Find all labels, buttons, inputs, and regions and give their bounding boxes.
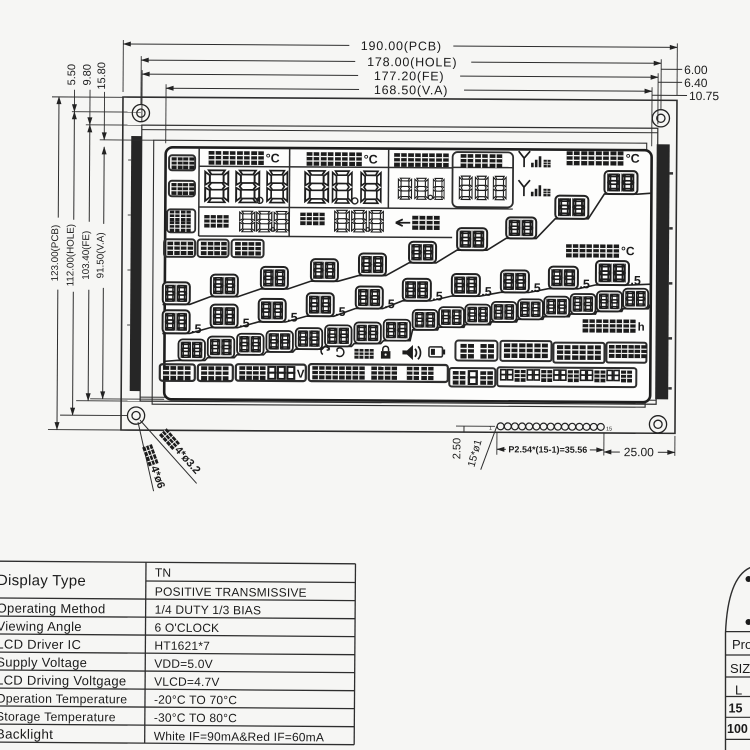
- svg-text:15: 15: [606, 426, 612, 432]
- svg-text:°C: °C: [621, 244, 635, 258]
- svg-text:91.50(V.A): 91.50(V.A): [95, 232, 106, 278]
- svg-text:9.80: 9.80: [82, 64, 94, 85]
- svg-text:15: 15: [729, 702, 743, 716]
- svg-text:VDD=5.0V: VDD=5.0V: [154, 657, 213, 671]
- svg-text:Operation Temperature: Operation Temperature: [0, 691, 127, 706]
- svg-text:10.75: 10.75: [689, 89, 719, 103]
- svg-text:.5: .5: [579, 277, 590, 291]
- svg-text:Storage Temperature: Storage Temperature: [0, 709, 116, 724]
- svg-text:Display Type: Display Type: [0, 572, 86, 590]
- svg-text:2.50: 2.50: [451, 438, 463, 459]
- svg-text:TN: TN: [155, 566, 172, 580]
- svg-text:POSITIVE TRANSMISSIVE: POSITIVE TRANSMISSIVE: [155, 585, 307, 600]
- svg-text:.5: .5: [384, 297, 395, 311]
- svg-text:LCD Driving Voltgage: LCD Driving Voltgage: [0, 672, 126, 688]
- svg-text:25.00: 25.00: [624, 445, 654, 459]
- svg-text:112.00(HOLE): 112.00(HOLE): [65, 224, 76, 287]
- svg-text:190.00(PCB): 190.00(PCB): [361, 39, 442, 53]
- svg-text:h: h: [638, 322, 645, 334]
- svg-text:168.50(V.A): 168.50(V.A): [374, 83, 448, 97]
- svg-text:-20°C TO 70°C: -20°C TO 70°C: [154, 693, 237, 708]
- svg-text:6 O'CLOCK: 6 O'CLOCK: [154, 621, 219, 635]
- svg-text:.5: .5: [530, 281, 541, 295]
- svg-text:100: 100: [727, 722, 748, 736]
- svg-text:123.00(PCB): 123.00(PCB): [50, 225, 61, 282]
- svg-text:Backlight: Backlight: [0, 726, 53, 741]
- svg-text:HT1621*7: HT1621*7: [154, 639, 210, 653]
- svg-text:.5: .5: [432, 289, 443, 303]
- svg-text:°C: °C: [626, 152, 640, 166]
- svg-text:White IF=90mA&Red IF=60mA: White IF=90mA&Red IF=60mA: [154, 729, 325, 744]
- svg-text:Pro: Pro: [732, 637, 750, 652]
- svg-text:.5: .5: [239, 316, 250, 330]
- svg-text:15.80: 15.80: [96, 62, 108, 90]
- svg-text:103.40(FE): 103.40(FE): [81, 231, 92, 280]
- svg-text:-30°C TO 80°C: -30°C TO 80°C: [154, 711, 237, 726]
- svg-text:°C: °C: [364, 152, 378, 166]
- svg-text:6.40: 6.40: [684, 76, 708, 90]
- svg-text:SIZ: SIZ: [730, 661, 750, 676]
- svg-text:5.50: 5.50: [66, 64, 78, 85]
- svg-text:.5: .5: [481, 285, 492, 299]
- svg-text:VLCD=4.7V: VLCD=4.7V: [154, 675, 220, 689]
- svg-text:1/4 DUTY 1/3 BIAS: 1/4 DUTY 1/3 BIAS: [155, 603, 262, 618]
- svg-text:.5: .5: [191, 322, 202, 336]
- svg-text:.5: .5: [335, 305, 346, 319]
- svg-text:°C: °C: [266, 151, 280, 165]
- svg-text:Operating Method: Operating Method: [0, 600, 106, 616]
- svg-text:Supply Voltage: Supply Voltage: [0, 654, 87, 670]
- svg-text:.5: .5: [630, 274, 641, 288]
- svg-text:L: L: [735, 683, 742, 698]
- svg-text:LCD Driver IC: LCD Driver IC: [0, 636, 81, 652]
- svg-text:.5: .5: [287, 311, 298, 325]
- svg-text:P2.54*(15-1)=35.56: P2.54*(15-1)=35.56: [508, 444, 587, 454]
- svg-text:177.20(FE): 177.20(FE): [374, 69, 445, 83]
- svg-text:V: V: [297, 369, 305, 381]
- svg-text:6.00: 6.00: [684, 63, 708, 77]
- svg-text:Viewing Angle: Viewing Angle: [0, 618, 82, 634]
- svg-text:178.00(HOLE): 178.00(HOLE): [367, 55, 457, 70]
